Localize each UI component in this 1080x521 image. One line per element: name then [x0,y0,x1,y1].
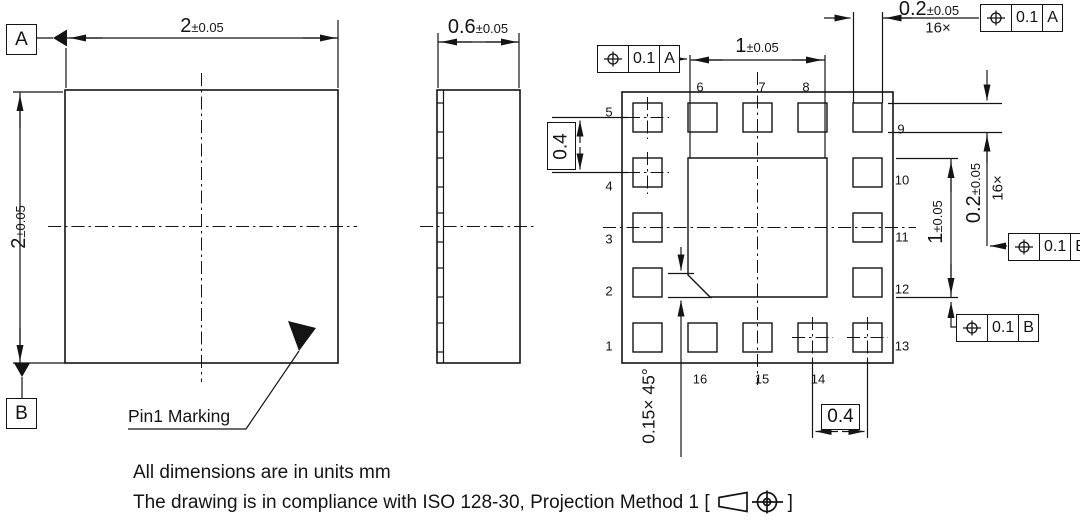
pin-height-count: 16× [991,175,1006,200]
datum-b-label: B [15,403,28,425]
top-view-width-dim: 2±0.05 [180,16,224,36]
package-outline-drawing: A B 2±0.05 2±0.05 Pin1 Marking 0.6±0.05 … [0,0,1080,521]
pin-number-4: 4 [605,180,612,193]
position-symbol-icon [957,315,987,341]
fcf-datum-ref: A [659,46,679,72]
top-view-dimensions [13,20,338,429]
fcf-tolerance: 0.1 [1011,5,1042,31]
pin-width-dim: 0.2±0.05 [899,0,959,19]
pin-number-11: 11 [895,231,909,244]
pin-height-dim: 0.2±0.05 [964,163,984,223]
note-units: All dimensions are in units mm [133,463,391,482]
fcf-pin-height: 0.1 B [1008,233,1080,261]
first-angle-projection-icon [713,489,785,515]
pin-number-13: 13 [895,340,909,353]
top-view-centerlines [48,73,357,382]
pad-height-dim: 1±0.05 [926,200,946,244]
pin-number-6: 6 [696,81,703,94]
fcf-tolerance: 0.1 [987,315,1018,341]
note-projection-text: The drawing is in compliance with ISO 12… [133,493,710,512]
pin-number-7: 7 [758,81,765,94]
datum-a-box: A [6,24,37,55]
pin-number-5: 5 [605,106,612,119]
fcf-tolerance: 0.1 [628,46,659,72]
pin1-marking-label: Pin1 Marking [128,408,230,426]
pad-width-dim: 1±0.05 [735,36,779,56]
fcf-datum-ref: B [1070,234,1080,260]
pin-number-16: 16 [693,373,707,386]
side-view-thickness-dim: 0.6±0.05 [448,17,508,37]
pin-number-3: 3 [605,233,612,246]
pin-number-12: 12 [895,283,909,296]
top-view-height-dim: 2±0.05 [9,205,29,249]
pin-width-count: 16× [925,21,950,36]
fcf-pad-width: 0.1 A [597,45,680,73]
pitch-bottom-basic-dim: 0.4 [821,404,860,430]
pin-number-8: 8 [802,81,809,94]
position-symbol-icon [981,5,1011,31]
note-projection-bracket: ] [788,493,793,512]
chamfer-dim: 0.15× 45° [640,368,658,444]
pin-number-1: 1 [605,340,612,353]
fcf-pad-height: 0.1 B [956,314,1039,342]
note-projection: The drawing is in compliance with ISO 12… [133,489,793,515]
pitch-left-basic-dim: 0.4 [547,122,576,170]
pin-number-15: 15 [755,373,769,386]
pin-number-2: 2 [605,285,612,298]
fcf-datum-ref: B [1018,315,1038,341]
datum-a-label: A [15,29,28,51]
fcf-pin-width: 0.1 A [980,4,1063,32]
drawing-linework [0,0,1080,521]
bottom-view-body [622,92,893,363]
side-view-lead-ticks [437,103,444,352]
fcf-tolerance: 0.1 [1039,234,1070,260]
position-symbol-icon [1009,234,1039,260]
pin-number-10: 10 [895,174,909,187]
fcf-datum-ref: A [1042,5,1062,31]
pin-number-14: 14 [811,373,825,386]
bottom-view-centerlines [603,72,916,385]
position-symbol-icon [598,46,628,72]
datum-b-box: B [6,398,37,429]
side-view-dimensions [438,33,519,88]
pin-number-9: 9 [897,123,904,136]
